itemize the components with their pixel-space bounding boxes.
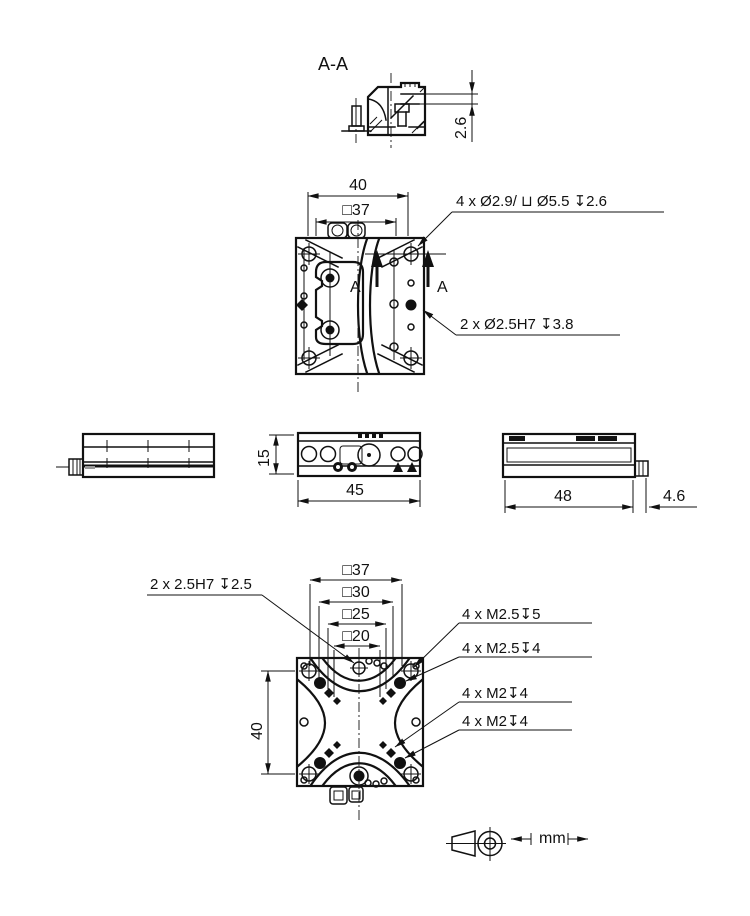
- dim-sq25: □25: [342, 606, 370, 623]
- dim-width-40: 40: [349, 177, 367, 194]
- dim-sq30: □30: [342, 584, 370, 601]
- dim-width-48: 48: [554, 488, 572, 505]
- cut-label-left: A: [350, 279, 361, 296]
- technical-drawing: A-A: [0, 0, 750, 916]
- top-view-pocket: [316, 252, 363, 356]
- dowel-note-bottom: 2 x 2.5H7 ↧2.5: [147, 576, 354, 663]
- first-angle-projection-icon: [446, 827, 506, 861]
- section-title: A-A: [318, 54, 348, 74]
- front-view-dim-15: 15: [256, 435, 294, 474]
- dim-sq20: □20: [342, 628, 370, 645]
- top-view-nuts: [328, 223, 365, 238]
- top-view: A A 40 □37 4 x Ø2.9/ ⊔ Ø5.5 ↧2.6 2 x Ø2.…: [296, 177, 664, 392]
- front-view-bearings: [302, 444, 423, 472]
- note-m2-4a: 4 x M2↧4: [462, 685, 528, 702]
- note-m2-4b: 4 x M2↧4: [462, 713, 528, 730]
- note-counterbore: 4 x Ø2.9/ ⊔ Ø5.5 ↧2.6: [456, 193, 607, 210]
- note-m25-5: 4 x M2.5↧5: [462, 606, 540, 623]
- right-view-dim-4-6: 4.6: [646, 478, 697, 513]
- dim-depth: 2.6: [453, 117, 470, 139]
- section-view-aa: A-A: [318, 54, 478, 148]
- bottom-view-holes: [299, 658, 421, 787]
- note-dowel-bottom: 2 x 2.5H7 ↧2.5: [150, 576, 252, 593]
- counterbore-note: 4 x Ø2.9/ ⊔ Ø5.5 ↧2.6: [418, 193, 664, 246]
- projection-units: mm: [446, 827, 588, 861]
- dowel-note-top: 2 x Ø2.5H7 ↧3.8: [423, 310, 620, 335]
- drawing-canvas: A-A: [0, 0, 750, 916]
- section-pin: [342, 106, 371, 131]
- note-m25-4: 4 x M2.5↧4: [462, 640, 540, 657]
- left-side-view: [56, 434, 214, 477]
- thread-notes: 4 x M2.5↧5 4 x M2.5↧4 4 x M2↧4 4 x M2↧4: [395, 606, 592, 758]
- front-view-dim-45: 45: [298, 480, 420, 507]
- dim-height-15: 15: [256, 449, 273, 467]
- cut-label-right: A: [437, 279, 448, 296]
- front-view: 15 45: [256, 433, 422, 507]
- dim-square-37: □37: [342, 202, 370, 219]
- right-view-dim-48: 48: [505, 480, 633, 513]
- bottom-view-connector: [330, 787, 363, 804]
- bottom-view-square-dims: □37 □30 □25 □20: [310, 562, 402, 697]
- bottom-view: □37 □30 □25 □20 40 2 x 2.5H7 ↧2.5 4 x M2…: [147, 562, 592, 820]
- dim-height-40: 40: [249, 722, 266, 740]
- dim-sq37: □37: [342, 562, 370, 579]
- dim-width-45: 45: [346, 482, 364, 499]
- dim-connector-46: 4.6: [663, 488, 685, 505]
- note-dowel-top: 2 x Ø2.5H7 ↧3.8: [460, 316, 573, 333]
- units-indicator: mm: [511, 830, 588, 847]
- right-view-connector: [635, 461, 648, 476]
- section-cut-line: A A: [350, 250, 448, 296]
- bottom-view-dim-40: 40: [249, 671, 295, 774]
- right-side-view: 48 4.6: [503, 434, 697, 513]
- units-label: mm: [539, 830, 566, 847]
